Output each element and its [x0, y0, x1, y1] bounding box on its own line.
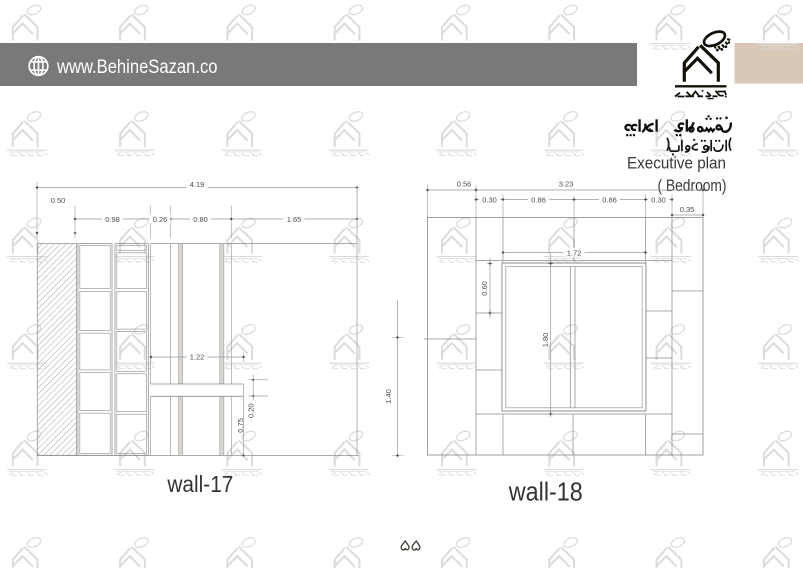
- svg-text:0.80: 0.80: [193, 215, 208, 224]
- svg-text:1.22: 1.22: [190, 353, 205, 362]
- svg-text:0.98: 0.98: [105, 215, 120, 224]
- svg-text:0.20: 0.20: [247, 403, 256, 418]
- svg-text:0.26: 0.26: [153, 215, 168, 224]
- svg-text:0.30: 0.30: [651, 196, 666, 205]
- svg-text:wall-18: wall-18: [508, 479, 583, 507]
- svg-text:0.60: 0.60: [480, 281, 489, 296]
- svg-text:4.19: 4.19: [190, 180, 205, 189]
- svg-text:wall-17: wall-17: [167, 471, 234, 497]
- svg-text:1.72: 1.72: [567, 248, 582, 257]
- svg-text:0.75: 0.75: [236, 418, 245, 433]
- svg-text:0.50: 0.50: [51, 196, 66, 205]
- svg-text:1.40: 1.40: [384, 389, 393, 404]
- svg-text:0.56: 0.56: [457, 180, 472, 189]
- svg-text:1.65: 1.65: [287, 215, 302, 224]
- svg-text:0.86: 0.86: [531, 196, 546, 205]
- svg-text:1.80: 1.80: [541, 333, 550, 348]
- svg-text:0.30: 0.30: [482, 196, 497, 205]
- svg-text:3.23: 3.23: [559, 180, 574, 189]
- svg-text:0.35: 0.35: [680, 205, 695, 214]
- svg-text:www.BehineSazan.co: www.BehineSazan.co: [56, 56, 217, 78]
- svg-text:( Bedroom): ( Bedroom): [658, 176, 727, 195]
- svg-text:Executive plan: Executive plan: [627, 154, 726, 173]
- svg-text:0.86: 0.86: [602, 196, 617, 205]
